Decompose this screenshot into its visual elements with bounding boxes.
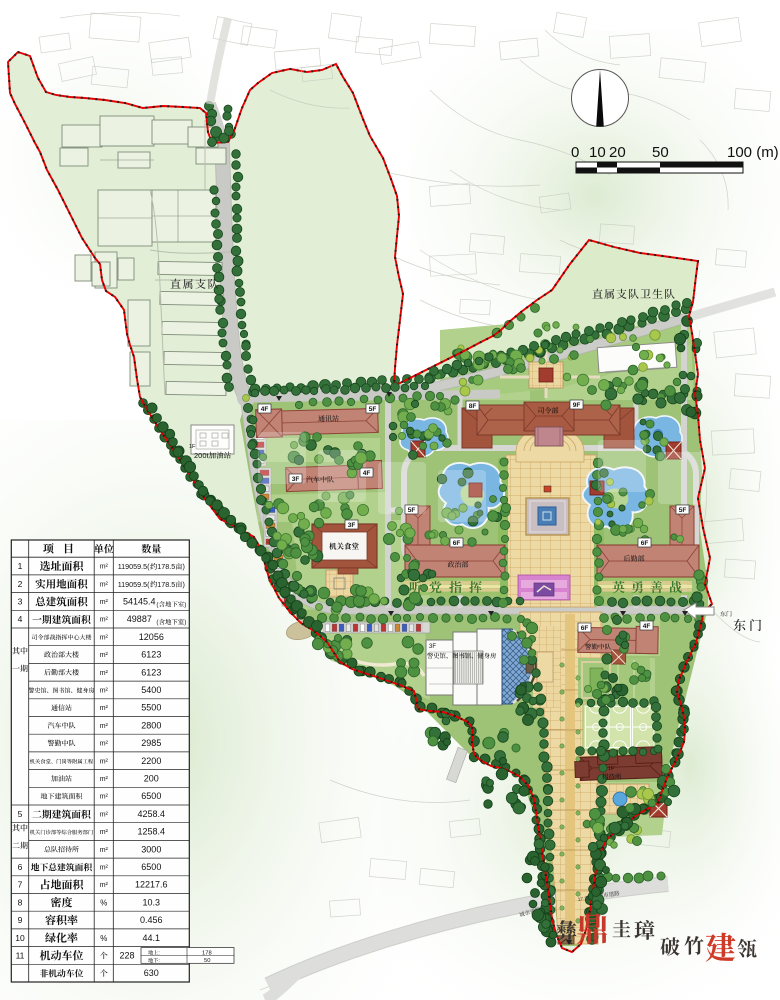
svg-text:8: 8 [18,897,23,907]
svg-text:10.3: 10.3 [143,897,161,907]
svg-text:m²: m² [100,865,109,872]
svg-text:): ) [184,602,186,609]
svg-text:119059.5(: 119059.5( [118,580,150,589]
svg-text:1258.4: 1258.4 [138,827,166,837]
svg-text:6123: 6123 [141,667,161,677]
svg-text:6F: 6F [581,625,589,632]
svg-text:4F: 4F [643,623,651,630]
svg-text:m²: m² [100,847,109,854]
svg-text:10: 10 [589,144,606,161]
svg-text:6500: 6500 [141,791,161,801]
svg-text:5400: 5400 [141,685,161,695]
svg-text:7: 7 [18,880,23,890]
svg-text:8F: 8F [469,403,477,410]
svg-text:6500: 6500 [141,862,161,872]
svg-text:9F: 9F [573,402,581,409]
svg-text:%: % [100,934,107,943]
svg-text:): ) [183,580,185,589]
svg-text:2985: 2985 [141,738,161,748]
svg-text:4: 4 [18,614,23,624]
svg-text:3F: 3F [348,522,356,529]
svg-text:m²: m² [100,882,109,889]
svg-text:6F: 6F [641,540,649,547]
svg-text:200: 200 [144,774,159,784]
svg-text:1F: 1F [189,444,196,450]
svg-text:178.5: 178.5 [157,562,175,571]
svg-text:4F: 4F [261,406,269,413]
svg-text:12217.6: 12217.6 [135,880,168,890]
svg-text:100 (m): 100 (m) [727,144,779,161]
svg-text:3000: 3000 [141,844,161,854]
svg-text:44.1: 44.1 [143,933,161,943]
svg-text:0.456: 0.456 [140,915,163,925]
svg-text:m²: m² [100,723,109,730]
svg-text:178.5: 178.5 [157,580,175,589]
svg-text:12056: 12056 [139,632,164,642]
svg-text:50: 50 [204,958,210,964]
svg-text:5: 5 [18,809,23,819]
svg-text:m²: m² [100,617,109,624]
svg-text:m²: m² [100,688,109,695]
svg-text:): ) [183,562,185,571]
svg-text:9: 9 [18,915,23,925]
svg-text:3F: 3F [429,644,436,650]
svg-text:6F: 6F [453,540,461,547]
svg-text:178: 178 [202,950,212,956]
svg-text:20: 20 [609,144,626,161]
svg-text:6: 6 [18,862,23,872]
svg-text:3: 3 [18,597,23,607]
svg-text:5F: 5F [408,507,416,514]
svg-text:m²: m² [100,564,109,571]
svg-text:1F: 1F [608,766,615,772]
svg-text:5500: 5500 [141,703,161,713]
svg-text:200t: 200t [194,451,210,460]
svg-text:m²: m² [100,758,109,765]
svg-text:2200: 2200 [141,756,161,766]
svg-text:m²: m² [100,581,109,588]
svg-text:228: 228 [120,951,135,961]
svg-text:5F: 5F [369,406,377,413]
svg-text:49887: 49887 [127,614,152,624]
svg-text::: : [158,958,159,964]
svg-text:630: 630 [144,968,159,978]
svg-text:m²: m² [100,811,109,818]
svg-text:): ) [184,619,186,626]
svg-text:m²: m² [100,794,109,801]
svg-text:2: 2 [18,579,23,589]
svg-text:10: 10 [15,933,25,943]
svg-text:m²: m² [100,652,109,659]
svg-text:54145.4: 54145.4 [123,597,156,607]
svg-text:6123: 6123 [141,650,161,660]
svg-text::: : [158,950,159,956]
svg-text:1: 1 [18,561,23,571]
svg-text:0: 0 [571,144,579,161]
svg-text:50: 50 [652,144,669,161]
svg-text:119059.5(: 119059.5( [118,562,150,571]
svg-text:5F: 5F [679,507,687,514]
svg-text:m²: m² [100,829,109,836]
svg-text:%: % [100,898,107,907]
svg-text:m²: m² [100,599,109,606]
svg-text:m²: m² [100,741,109,748]
svg-text:2800: 2800 [141,720,161,730]
svg-text:3F: 3F [292,476,300,483]
svg-text:m²: m² [100,634,109,641]
svg-text:m²: m² [100,776,109,783]
svg-text:m²: m² [100,705,109,712]
svg-text:11: 11 [16,951,25,961]
svg-text:4258.4: 4258.4 [138,809,166,819]
svg-text:4F: 4F [363,470,371,477]
svg-text:m²: m² [100,670,109,677]
